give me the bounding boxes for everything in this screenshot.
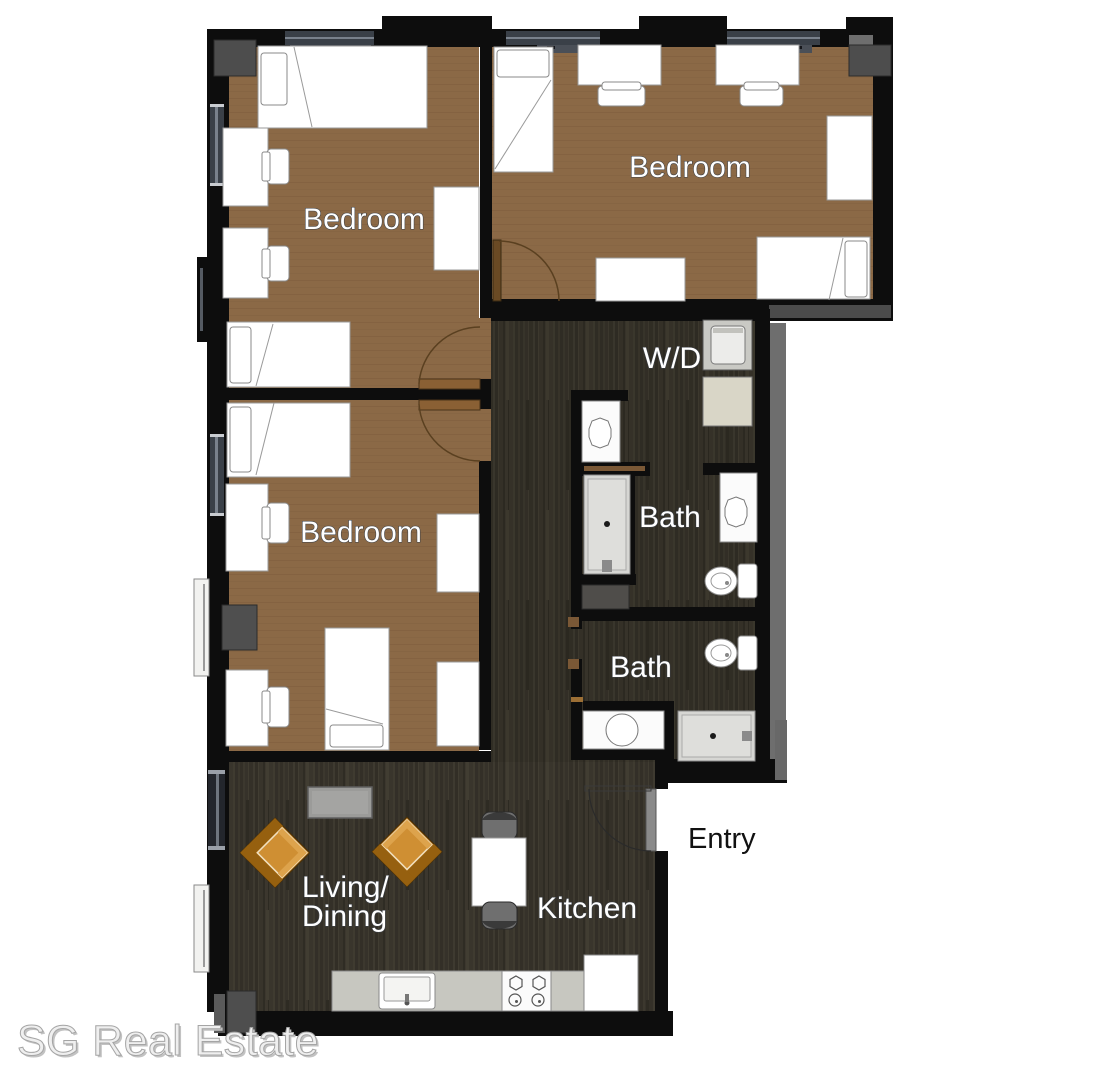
svg-text:Bath: Bath bbox=[639, 501, 701, 534]
svg-text:SG Real Estate: SG Real Estate bbox=[17, 1017, 319, 1065]
svg-text:Entry: Entry bbox=[688, 823, 756, 855]
svg-text:Bedroom: Bedroom bbox=[303, 203, 425, 236]
svg-text:Bedroom: Bedroom bbox=[629, 151, 751, 184]
svg-text:Bath: Bath bbox=[610, 651, 672, 684]
svg-text:W/D: W/D bbox=[643, 342, 701, 375]
svg-text:Bedroom: Bedroom bbox=[300, 516, 422, 549]
svg-text:Kitchen: Kitchen bbox=[537, 892, 637, 925]
svg-text:Dining: Dining bbox=[302, 900, 387, 933]
